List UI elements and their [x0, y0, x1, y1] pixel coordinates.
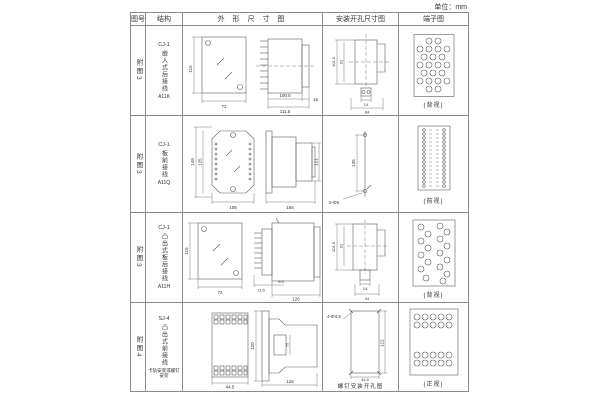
structure-row3: CJ-1 凸出式板后接线 A11H	[146, 213, 183, 303]
terminal-diagram-row2	[402, 123, 466, 195]
header-terminal-diagram: 端子图	[399, 13, 468, 26]
svg-text:101.5: 101.5	[331, 241, 336, 252]
terminal-cell-row1: (背视)	[399, 26, 468, 116]
outline-drawing-row3: 115 72 11.5 9.5 126	[184, 215, 322, 301]
svg-text:16: 16	[313, 97, 319, 102]
structure-row1: CJ-1 嵌入式后接线 A11K	[146, 26, 183, 116]
structure-desc: 嵌入式后接线	[160, 50, 169, 92]
structure-desc: 凸出式前接线	[160, 324, 169, 366]
install-cell-row4: 4-Φ4.5 112 44.5 螺钉安装开孔图	[323, 303, 399, 391]
outline-cell-row2: 149 125 105 121 156	[183, 116, 323, 213]
svg-text:112: 112	[379, 338, 384, 346]
svg-text:101.5: 101.5	[331, 56, 336, 67]
svg-text:156: 156	[286, 205, 294, 210]
structure-row4: SJ-4 凸出式前接线 卡轨安装或螺钉安装	[146, 303, 183, 391]
install-caption: 螺钉安装开孔图	[338, 382, 384, 390]
terminal-diagram-row3	[402, 217, 466, 289]
install-drawing-row2: 135 2-Φ6	[325, 119, 397, 209]
svg-text:111.5: 111.5	[279, 109, 290, 114]
terminal-cell-row4: (正视)	[399, 303, 468, 391]
svg-text:120: 120	[250, 342, 255, 350]
install-drawing-row1: 101.5 91 14 84	[325, 28, 397, 114]
svg-text:115: 115	[188, 64, 193, 72]
terminal-caption: (背视)	[424, 100, 444, 109]
svg-text:72: 72	[221, 104, 227, 109]
structure-desc: 凸出式板后接线	[160, 233, 169, 282]
fig-no-row2: 附图3	[131, 116, 146, 213]
spec-table: 图号 结构 外 形 尺 寸 图 安装开孔尺寸图 端子图 附图3 CJ-1 嵌入式…	[130, 12, 469, 392]
svg-text:105: 105	[229, 205, 237, 210]
model-label: CJ-1	[158, 42, 170, 48]
svg-text:4-Φ4.5: 4-Φ4.5	[327, 314, 341, 319]
install-drawing-row3: 101.5 91 14 44	[325, 214, 397, 302]
svg-text:100.5: 100.5	[279, 93, 291, 98]
fig-no-row3: 附图3	[131, 213, 146, 303]
svg-text:125: 125	[197, 157, 202, 165]
type-code: A11Q	[158, 180, 170, 186]
structure-row2: CJ-1 板前接线 A11Q	[146, 116, 183, 213]
type-code: A11K	[158, 94, 170, 100]
svg-text:72: 72	[217, 290, 223, 295]
document-page: 单位：mm 图号 结构 外 形 尺 寸 图 安装开孔尺寸图 端子图 附图3 CJ…	[0, 0, 600, 400]
svg-text:126: 126	[292, 296, 300, 301]
outline-cell-row4: 44.5 75 120 128	[183, 303, 323, 391]
structure-desc: 板前接线	[160, 150, 169, 178]
terminal-cell-row2: (前视)	[399, 116, 468, 213]
svg-text:135: 135	[351, 159, 356, 167]
outline-drawing-row4: 44.5 75 120 128	[184, 305, 322, 389]
svg-text:44.5: 44.5	[225, 385, 234, 390]
unit-label: 单位：mm	[130, 2, 467, 12]
svg-text:84: 84	[364, 109, 369, 114]
svg-text:44.5: 44.5	[361, 377, 370, 381]
svg-text:149: 149	[190, 157, 195, 165]
terminal-diagram-row4	[402, 306, 466, 378]
svg-text:91: 91	[338, 59, 343, 64]
terminal-diagram-row1	[402, 33, 466, 99]
svg-text:115: 115	[184, 246, 189, 254]
install-cell-row2: 135 2-Φ6	[323, 116, 399, 213]
model-label: SJ-4	[158, 316, 169, 322]
header-structure: 结构	[146, 13, 183, 26]
svg-text:128: 128	[286, 379, 294, 384]
svg-text:121: 121	[313, 157, 318, 165]
fig-no-row4: 附图4	[131, 303, 146, 391]
header-outline-dims: 外 形 尺 寸 图	[183, 13, 323, 26]
terminal-caption: (背视)	[424, 290, 444, 299]
install-cell-row3: 101.5 91 14 44	[323, 213, 399, 303]
type-code: A11H	[158, 284, 170, 290]
svg-text:44: 44	[364, 296, 369, 301]
mounting-note: 卡轨安装或螺钉安装	[148, 368, 180, 379]
fig-no-row1: 附图3	[131, 26, 146, 116]
outline-cell-row1: 115 72 100.5 16 111.5	[183, 26, 323, 116]
install-cell-row1: 101.5 91 14 84	[323, 26, 399, 116]
svg-text:75: 75	[284, 342, 289, 347]
terminal-cell-row3: (背视)	[399, 213, 468, 303]
outline-drawing-row1: 115 72 100.5 16 111.5	[184, 28, 322, 114]
svg-text:11.5: 11.5	[257, 287, 265, 292]
header-fig-no: 图号	[131, 13, 146, 26]
header-install-holes: 安装开孔尺寸图	[323, 13, 399, 26]
model-label: CJ-1	[158, 225, 170, 231]
svg-text:14: 14	[363, 102, 368, 107]
svg-text:91: 91	[338, 243, 343, 248]
svg-text:14: 14	[362, 286, 367, 291]
terminal-caption: (正视)	[424, 379, 444, 388]
install-drawing-row4: 4-Φ4.5 112 44.5	[325, 305, 397, 381]
outline-cell-row3: 115 72 11.5 9.5 126	[183, 213, 323, 303]
svg-text:9.5: 9.5	[278, 279, 284, 284]
terminal-caption: (前视)	[424, 196, 444, 205]
outline-drawing-row2: 149 125 105 121 156	[184, 118, 322, 211]
svg-text:2-Φ6: 2-Φ6	[329, 200, 340, 205]
model-label: CJ-1	[158, 142, 170, 148]
